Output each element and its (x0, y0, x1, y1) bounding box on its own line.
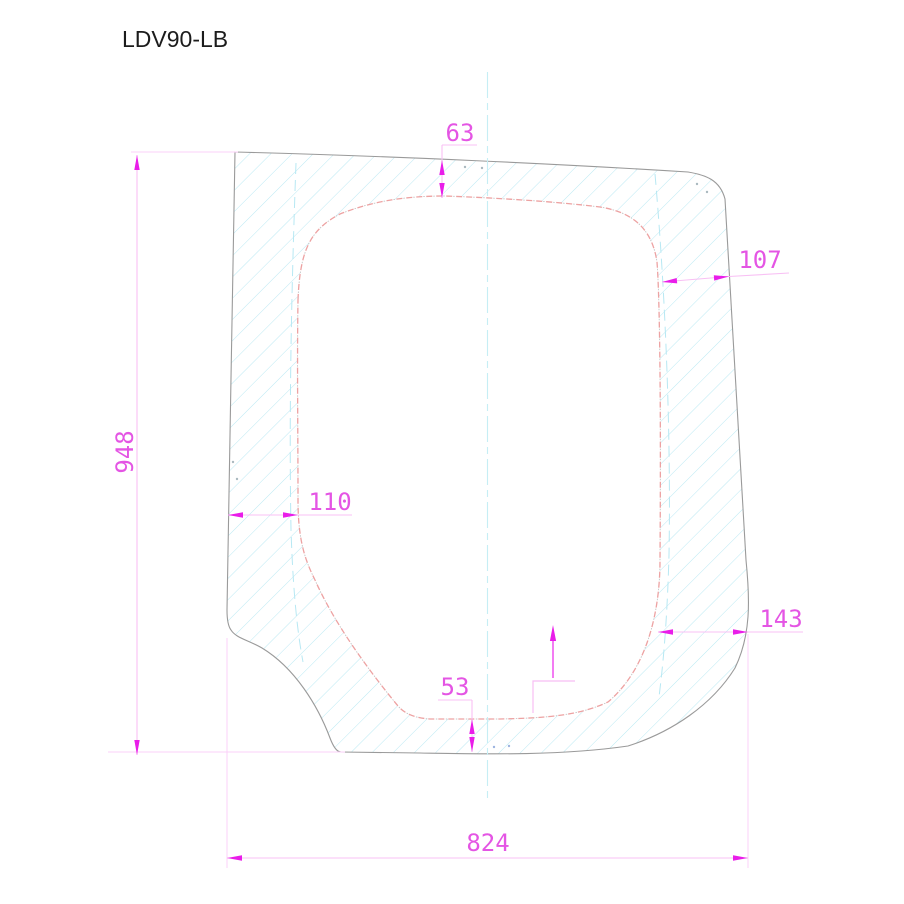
dimension-value: 110 (308, 488, 351, 516)
dimension-value: 948 (111, 430, 139, 473)
glass-clear-area (298, 196, 661, 719)
drawing-title: LDV90-LB (122, 26, 228, 52)
dimension-value: 107 (738, 246, 781, 274)
dimension-value: 824 (466, 829, 509, 857)
dimension-value: 53 (441, 673, 470, 701)
drawing-canvas: 63 107 948 110 143 53 (0, 0, 904, 904)
arrow-right-icon (733, 855, 748, 860)
arrow-down-icon (134, 740, 139, 755)
drawing-sheet: 63 107 948 110 143 53 (0, 0, 904, 904)
arrow-up-icon (134, 155, 139, 170)
dimension-value: 143 (759, 605, 802, 633)
arrow-left-icon (227, 855, 242, 860)
dimension-value: 63 (446, 119, 475, 147)
